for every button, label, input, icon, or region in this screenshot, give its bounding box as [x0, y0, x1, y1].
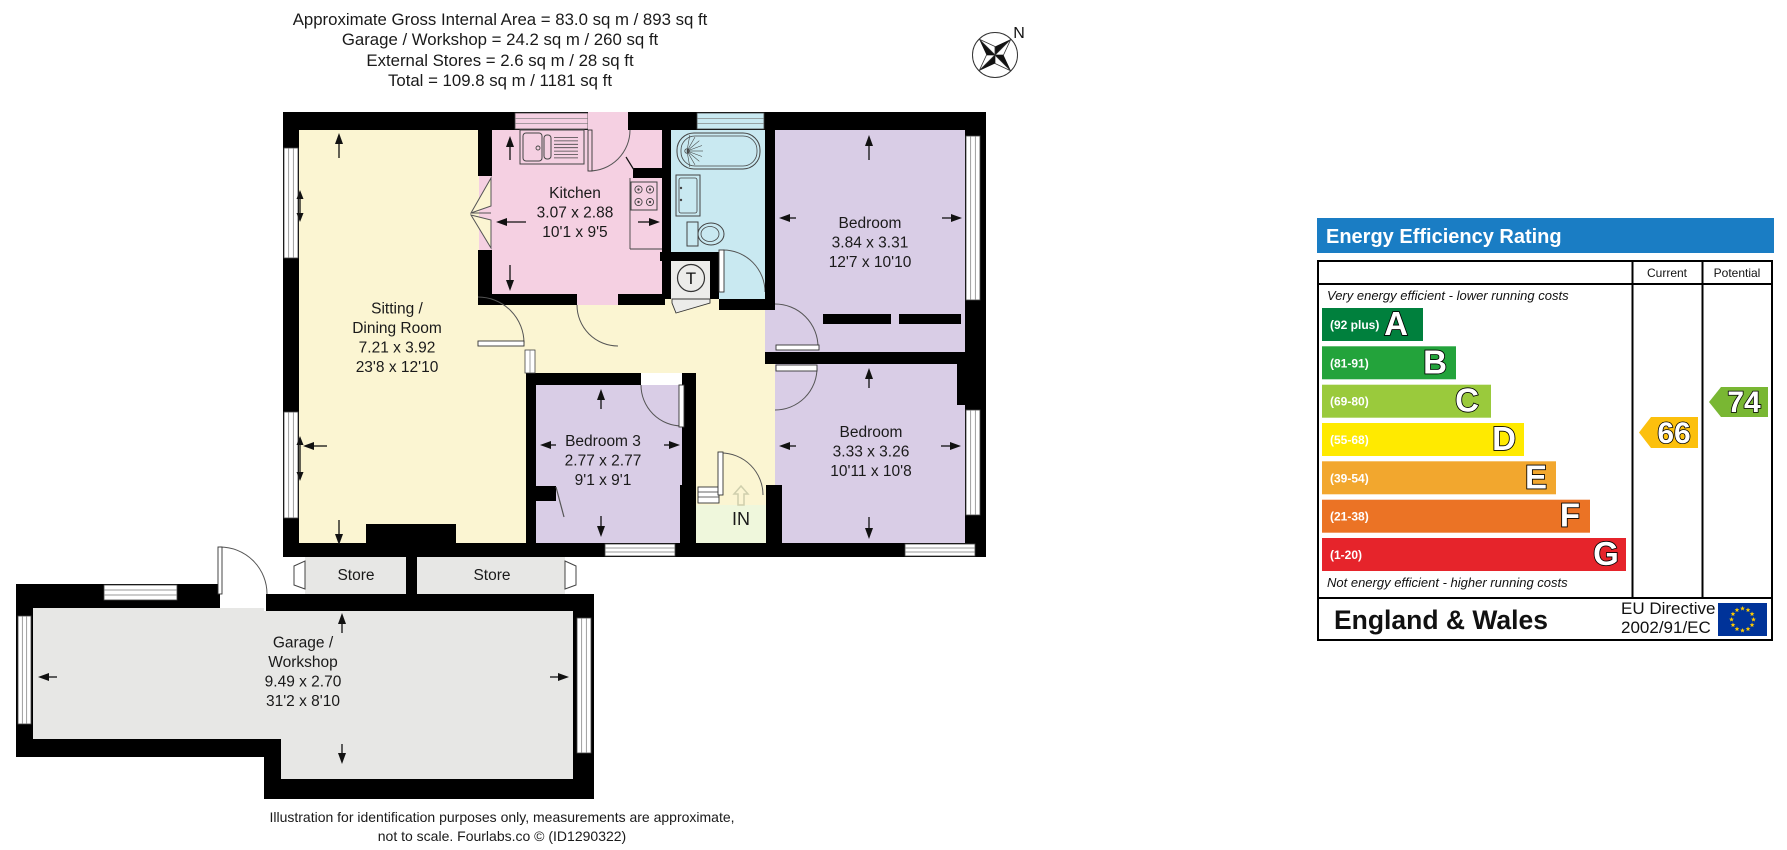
svg-text:N: N: [1013, 25, 1025, 42]
svg-text:12'7 x 10'10: 12'7 x 10'10: [829, 254, 912, 271]
svg-text:3.07 x 2.88: 3.07 x 2.88: [537, 205, 614, 222]
svg-text:9'1 x 9'1: 9'1 x 9'1: [575, 472, 632, 489]
svg-text:2.77 x 2.77: 2.77 x 2.77: [565, 453, 642, 470]
svg-text:10'11 x 10'8: 10'11 x 10'8: [830, 463, 911, 480]
svg-text:Not energy efficient - higher: Not energy efficient - higher running co…: [1327, 575, 1568, 590]
svg-text:Bedroom: Bedroom: [840, 424, 903, 441]
svg-text:Very energy efficient - lower: Very energy efficient - lower running co…: [1327, 288, 1569, 303]
svg-text:74: 74: [1727, 386, 1761, 419]
svg-text:(92 plus): (92 plus): [1330, 318, 1379, 332]
svg-text:Current: Current: [1647, 266, 1688, 280]
svg-text:9.49 x 2.70: 9.49 x 2.70: [265, 674, 342, 691]
svg-text:England & Wales: England & Wales: [1334, 605, 1548, 635]
svg-text:Bedroom 3: Bedroom 3: [565, 433, 641, 450]
svg-text:B: B: [1423, 343, 1447, 380]
svg-text:(39-54): (39-54): [1330, 471, 1369, 485]
svg-text:23'8 x 12'10: 23'8 x 12'10: [356, 359, 439, 376]
svg-text:IN: IN: [732, 509, 750, 529]
svg-text:T: T: [686, 269, 696, 288]
svg-text:10'1 x 9'5: 10'1 x 9'5: [542, 224, 607, 241]
svg-text:C: C: [1455, 382, 1479, 419]
svg-text:(1-20): (1-20): [1330, 548, 1362, 562]
svg-text:F: F: [1560, 497, 1580, 534]
svg-text:Potential: Potential: [1714, 266, 1761, 280]
svg-text:(21-38): (21-38): [1330, 510, 1369, 524]
svg-text:Dining Room: Dining Room: [352, 320, 442, 337]
svg-text:Sitting /: Sitting /: [371, 301, 423, 318]
svg-text:(81-91): (81-91): [1330, 356, 1369, 370]
svg-text:Store: Store: [337, 567, 374, 584]
svg-text:D: D: [1492, 420, 1516, 457]
svg-text:3.33 x 3.26: 3.33 x 3.26: [833, 444, 910, 461]
svg-text:E: E: [1525, 458, 1547, 495]
svg-text:Workshop: Workshop: [268, 654, 338, 671]
svg-text:3.84 x 3.31: 3.84 x 3.31: [832, 235, 909, 252]
svg-text:Bedroom: Bedroom: [839, 215, 902, 232]
svg-text:A: A: [1384, 305, 1408, 342]
svg-text:G: G: [1593, 535, 1619, 572]
svg-text:Store: Store: [473, 567, 510, 584]
svg-text:2002/91/EC: 2002/91/EC: [1621, 618, 1711, 637]
svg-text:(55-68): (55-68): [1330, 433, 1369, 447]
svg-text:7.21 x 3.92: 7.21 x 3.92: [359, 340, 436, 357]
svg-text:31'2 x 8'10: 31'2 x 8'10: [266, 693, 340, 710]
svg-text:Energy Efficiency Rating: Energy Efficiency Rating: [1326, 226, 1562, 248]
svg-text:(69-80): (69-80): [1330, 395, 1369, 409]
svg-text:66: 66: [1657, 417, 1690, 450]
svg-text:EU Directive: EU Directive: [1621, 599, 1715, 618]
svg-text:Garage /: Garage /: [273, 635, 334, 652]
svg-text:Kitchen: Kitchen: [549, 185, 601, 202]
